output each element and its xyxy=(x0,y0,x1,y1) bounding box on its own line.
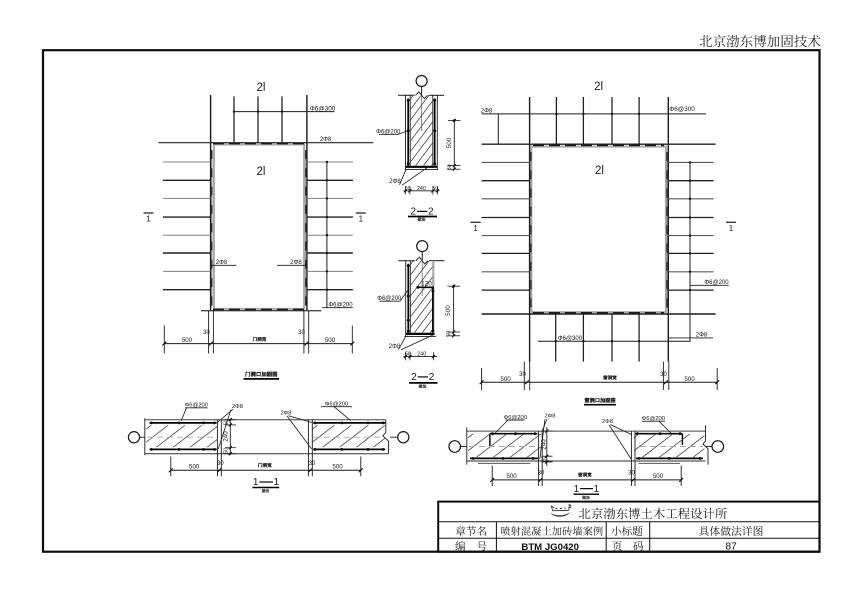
svg-text:30: 30 xyxy=(309,461,316,467)
svg-text:1: 1 xyxy=(146,215,151,224)
svg-text:2Φ8: 2Φ8 xyxy=(481,109,493,115)
svg-text:2l: 2l xyxy=(257,82,266,94)
svg-text:1: 1 xyxy=(594,484,600,495)
svg-text:240: 240 xyxy=(417,186,426,192)
svg-text:1: 1 xyxy=(574,484,580,495)
svg-text:50: 50 xyxy=(224,448,230,454)
svg-text:1: 1 xyxy=(253,477,259,488)
svg-text:2: 2 xyxy=(429,372,435,383)
svg-text:1: 1 xyxy=(473,224,478,233)
svg-text:500: 500 xyxy=(506,473,517,480)
svg-text:30: 30 xyxy=(298,330,305,336)
svg-text:30: 30 xyxy=(217,461,224,467)
svg-text:2l: 2l xyxy=(257,166,266,178)
svg-text:Φ6@300: Φ6@300 xyxy=(558,336,583,342)
svg-text:50: 50 xyxy=(541,456,547,462)
svg-text:2: 2 xyxy=(411,372,417,383)
svg-text:1: 1 xyxy=(729,224,734,233)
svg-text:30: 30 xyxy=(203,330,210,336)
svg-text:50: 50 xyxy=(446,331,452,337)
svg-text:2Φ8: 2Φ8 xyxy=(320,137,332,143)
svg-text:500: 500 xyxy=(500,376,511,383)
svg-text:500: 500 xyxy=(653,473,664,480)
svg-text:500: 500 xyxy=(182,337,193,344)
svg-text:30: 30 xyxy=(660,372,667,378)
svg-text:Φ6@300: Φ6@300 xyxy=(669,106,695,113)
svg-text:1: 1 xyxy=(274,477,280,488)
svg-text:500: 500 xyxy=(332,464,343,471)
svg-text:30: 30 xyxy=(519,372,526,378)
svg-text:2Φ8: 2Φ8 xyxy=(544,414,555,420)
svg-text:500: 500 xyxy=(445,305,452,316)
svg-text:50: 50 xyxy=(405,352,411,358)
svg-text:500: 500 xyxy=(446,137,453,148)
svg-text:50: 50 xyxy=(447,164,453,170)
svg-text:500: 500 xyxy=(189,464,200,471)
svg-text:1: 1 xyxy=(359,215,364,224)
svg-text:2l: 2l xyxy=(594,81,603,93)
svg-text:500: 500 xyxy=(684,376,695,383)
svg-text:Φ6@300: Φ6@300 xyxy=(310,105,336,112)
svg-text:240: 240 xyxy=(417,352,426,358)
svg-text:50: 50 xyxy=(432,186,438,192)
svg-text:30: 30 xyxy=(538,471,545,477)
svg-text:87: 87 xyxy=(725,542,737,553)
svg-text:30: 30 xyxy=(628,471,635,477)
svg-text:500: 500 xyxy=(325,337,336,344)
svg-text:2Φ8: 2Φ8 xyxy=(232,404,243,410)
svg-text:2Φ8: 2Φ8 xyxy=(602,419,613,425)
svg-text:50: 50 xyxy=(405,186,411,192)
svg-text:BTM JG0420: BTM JG0420 xyxy=(521,542,579,553)
svg-text:2Φ8: 2Φ8 xyxy=(280,410,291,416)
svg-text:2l: 2l xyxy=(595,165,604,177)
